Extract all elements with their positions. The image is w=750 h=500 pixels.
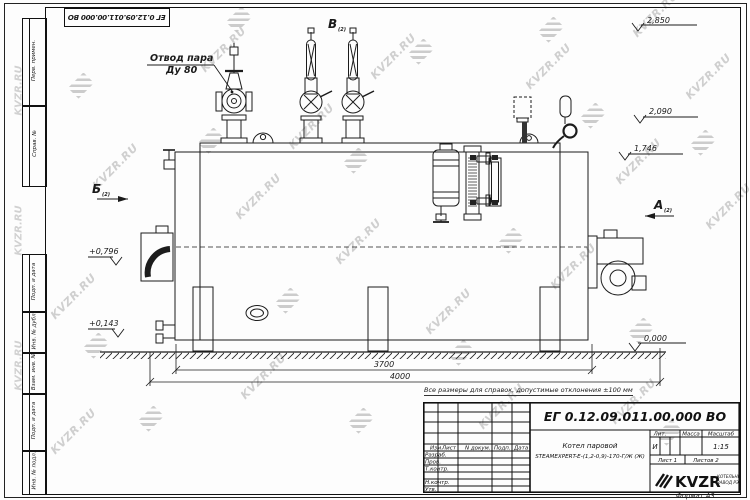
scale-label: Масштаб: [708, 432, 735, 438]
svg-text:А: А: [653, 198, 663, 212]
svg-text:4000: 4000: [390, 372, 410, 381]
row-tkontr: Т.контр.: [425, 467, 449, 473]
steam-outlet-valve: [216, 43, 252, 143]
doc-code: ЕГ 0.12.09.011.00.000 ВО: [544, 409, 727, 424]
svg-text:3700: 3700: [374, 360, 394, 369]
frame-cell-label: Инв. № подл.: [32, 451, 38, 494]
water-level-gauge: [464, 146, 501, 220]
frame-cell-sprav: Справ. №: [22, 105, 47, 187]
drawing-sheet: KVZR.RU KVZR.RU KVZR.RU KVZR.RU KVZR.RU …: [0, 0, 750, 500]
brand-logo-text: KVZR: [675, 473, 721, 491]
steam-outlet-callout: Отвод пара Ду 80: [147, 53, 233, 93]
svg-text:(2): (2): [338, 27, 346, 33]
safety-valve-1: [300, 28, 332, 143]
tolerance-note: Все размеры для справок, допустимые откл…: [424, 386, 633, 396]
handhole-oval: [246, 306, 268, 321]
row-razrab: Разраб.: [425, 453, 447, 459]
frame-cell-label: Подп. и дата: [32, 401, 38, 443]
burner: [588, 230, 646, 295]
svg-text:Б: Б: [92, 182, 101, 196]
lit-label: Лит.: [653, 432, 667, 438]
frame-cell-vzam-inv: Взам. инв. №: [22, 352, 47, 395]
scale-value: 1:15: [713, 443, 729, 451]
dim-3700: 3700: [172, 360, 596, 374]
col-list: Лист: [441, 446, 457, 452]
svg-text:1,746: 1,746: [634, 144, 657, 153]
col-podp: Подп.: [494, 446, 511, 452]
view-label-top: В (2): [328, 17, 346, 33]
svg-text:+0,143: +0,143: [89, 319, 119, 328]
frame-cell-label: Справ. №: [32, 130, 38, 162]
elevation-2850: 2,850: [632, 16, 697, 31]
bottom-dimensions: 3700 4000: [146, 344, 664, 386]
elevation-0000: 0,000: [629, 334, 686, 351]
title-block: ЕГ 0.12.09.011.00.000 ВО Изм. Лист N док…: [423, 402, 740, 493]
drain-valve-left: [163, 150, 175, 169]
frame-cell-inv-dubl: Инв. № дубл.: [22, 311, 47, 354]
product-name: Котел паровой: [563, 442, 618, 450]
svg-text:(2): (2): [664, 208, 672, 214]
callout-line1: Отвод пара: [150, 53, 213, 64]
view-label-right: А (2): [645, 198, 674, 219]
frame-cell-label: Взам. инв. №: [32, 352, 38, 394]
corner-stamp: ЕГ 0.12.09.011.00.000 ВО: [64, 8, 170, 27]
row-prov: Пров.: [425, 460, 441, 466]
elevation-2090: 2,090: [634, 107, 698, 123]
dim-4000: 4000: [146, 372, 664, 386]
sheets-total: Листов 2: [692, 458, 719, 464]
frame-cell-podp-data-2: Подп. и дата: [22, 393, 47, 452]
col-ndok: N докум.: [465, 446, 491, 452]
svg-text:+0,796: +0,796: [89, 247, 119, 256]
svg-text:2,850: 2,850: [647, 16, 670, 25]
lifting-lug-left: [253, 133, 273, 143]
lit-value: И: [652, 443, 658, 451]
svg-text:2,090: 2,090: [649, 107, 672, 116]
frame-cell-label: Подп. и дата: [32, 262, 38, 304]
frame-cell-label: Перв. примен.: [32, 39, 38, 85]
frame-cell-podp-data-1: Подп. и дата: [22, 254, 47, 313]
svg-text:В: В: [328, 17, 337, 31]
brand-sub2: ЗАВОД РЭ: [717, 480, 739, 485]
row-nkontr: Н.контр.: [425, 480, 450, 486]
pressure-gauge: [553, 96, 577, 148]
corner-stamp-code: ЕГ 0.12.09.011.00.000 ВО: [68, 13, 166, 22]
mass-label: Масса: [682, 432, 700, 438]
elevation-0796: +0,796: [88, 247, 122, 265]
frame-cell-label: Инв. № дубл.: [32, 311, 38, 354]
lower-left-fittings: [156, 321, 175, 343]
product-model: STEAMEXPERT-Е-(1,2-0,9)-170-Г/Ж (Ж): [535, 454, 645, 460]
cyclone-vessel: [433, 144, 459, 222]
format-label: Формат А3: [676, 492, 715, 500]
row-utv: Утв.: [425, 487, 437, 493]
ground-hatch: [100, 352, 666, 359]
sheet-number: Лист 1: [657, 458, 677, 464]
boiler-body: [175, 143, 588, 351]
safety-valve-2: [342, 28, 374, 143]
svg-text:0,000: 0,000: [644, 334, 667, 343]
callout-line2: Ду 80: [165, 65, 198, 76]
svg-text:(2): (2): [102, 192, 110, 198]
elevation-0143: +0,143: [88, 319, 124, 337]
frame-cell-perv-primen: Перв. примен.: [22, 18, 47, 107]
elevation-1746: 1,746: [619, 144, 683, 160]
frame-cell-inv-podl: Инв. № подл.: [22, 450, 47, 495]
view-label-left: Б (2): [92, 182, 128, 202]
flue-duct-box: [141, 226, 173, 281]
col-data: Дата: [513, 446, 529, 452]
brand-sub1: КОТЕЛЬНЫЙ: [717, 474, 740, 479]
